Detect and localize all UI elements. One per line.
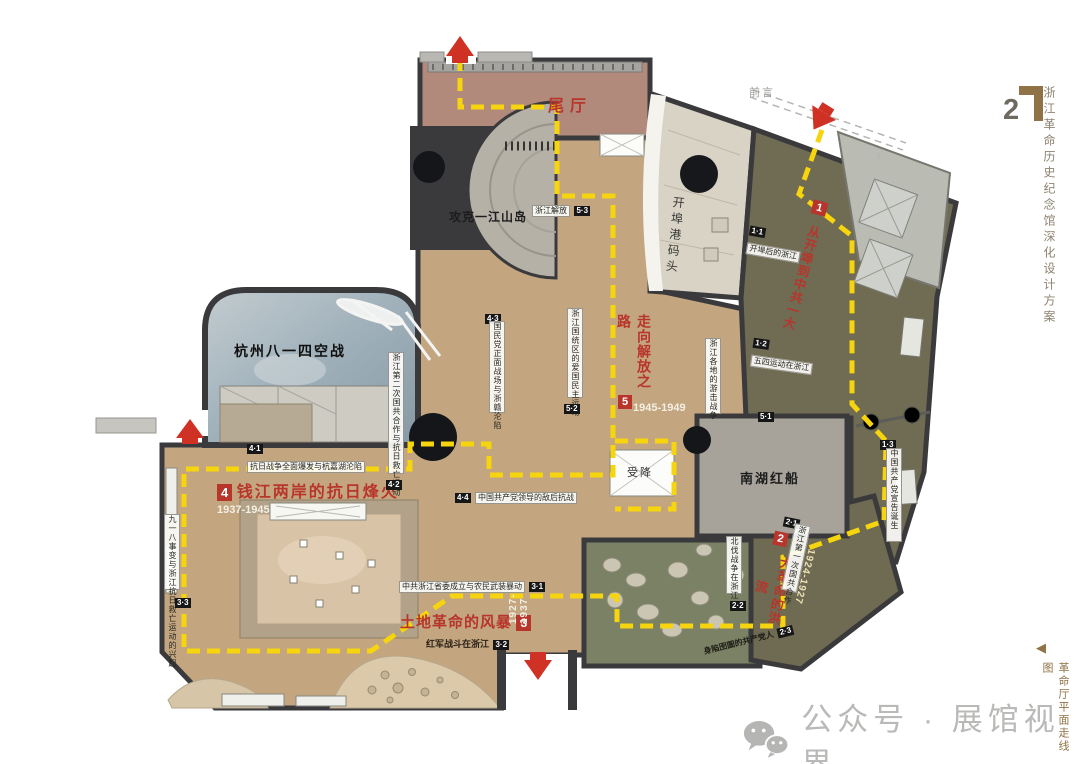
sub-4-1-code: 4·1: [247, 444, 263, 454]
watermark: 公众号 · 展馆视界: [742, 694, 1080, 764]
floor-plan-page: 尾厅 前言 攻克一江山岛 浙江解放 5·3 开埠港码头 1 从开埠到中共一大 1…: [0, 0, 1080, 764]
sub-3-1-label: 中共浙江省委成立与农民武装暴动: [399, 581, 525, 593]
sub-5-3: 浙江解放 5·3: [532, 200, 590, 218]
pillar: [680, 155, 718, 193]
sub-4-2-label: 浙江第二次国共合作与抗日救亡运动: [388, 352, 404, 474]
sub-5-3-code: 5·3: [574, 206, 590, 216]
end-hall-label: 尾厅: [548, 92, 592, 116]
section4-title: 钱江两岸的抗日烽火: [237, 484, 399, 501]
sub-4-1: 4·1 抗日战争全面爆发与杭嘉湖沦陷: [247, 438, 365, 474]
section3-years: 1927-1937: [508, 570, 530, 624]
sub-4-4: 4·4 中国共产党领导的敌后抗战: [455, 487, 577, 505]
sub-2-3-code: 2·3: [777, 625, 795, 638]
sub-2-2-code: 2·2: [730, 601, 746, 611]
logo-bracket-icon: [1019, 86, 1043, 121]
section2-number: 2: [772, 531, 789, 548]
sub-1-1-code: 1·1: [749, 225, 766, 238]
sub-1-3-label: 中国共产党宣告诞生: [886, 448, 902, 542]
section5-title: 走向解放之路: [614, 314, 654, 398]
watermark-text: 公众号 · 展馆视界: [801, 694, 1080, 764]
project-title: 浙江革命历史纪念馆深化设计方案: [1041, 86, 1058, 646]
section4-number: 4: [217, 484, 232, 501]
section5-years: 1945-1949: [633, 402, 686, 414]
sub-4-4-code: 4·4: [455, 493, 471, 503]
sub-5-2: 5·2: [564, 398, 580, 416]
section5-number: 5: [618, 395, 632, 409]
sub-5-2-label: 浙江国统区的爱国民主运动: [567, 308, 583, 398]
floor-plan-drawing: [0, 0, 1080, 764]
sub-4-3-label: 国民党正面战场与浙赣沦陷: [489, 321, 505, 413]
section4-years: 1937-1945: [217, 504, 399, 516]
sub-4-1-label: 抗日战争全面爆发与杭嘉湖沦陷: [247, 461, 365, 473]
section3-title: 土地革命的风暴: [400, 614, 512, 631]
relief-exhibit: [240, 500, 418, 638]
wechat-icon: [742, 718, 791, 760]
page-number: 2: [1003, 94, 1019, 127]
yijiangshan-label: 攻克一江山岛: [449, 208, 527, 225]
air-battle-label: 杭州八一四空战: [234, 341, 346, 361]
sub-1-2-code: 1·2: [753, 338, 770, 350]
sub-3-3-code: 3·3: [175, 598, 191, 608]
triangle-marker-icon: ◀: [1036, 640, 1046, 656]
pillar: [683, 426, 711, 454]
sub-3-2-code: 3·2: [493, 640, 509, 650]
section1-number: 1: [811, 200, 828, 217]
sub-2-2-label: 北伐战争在浙江: [726, 536, 742, 594]
sub-4-4-label: 中国共产党领导的敌后抗战: [475, 492, 577, 504]
sub-4-2: 4·2: [386, 474, 402, 492]
sub-2-2: 2·2: [730, 595, 746, 613]
section4-title-block: 4 钱江两岸的抗日烽火 1937-1945: [217, 478, 399, 516]
sub-4-2-code: 4·2: [386, 480, 402, 490]
preface-label: 前言: [749, 84, 775, 100]
sub-3-3: 3·3: [175, 592, 191, 610]
sub-5-1-code: 5·1: [758, 412, 774, 422]
crossed-display: [600, 134, 644, 156]
sub-5-1: 5·1: [758, 406, 774, 424]
sub-3-1-code: 3·1: [529, 582, 545, 592]
sub-5-1-label: 浙江各地的游击战争: [705, 338, 721, 414]
sub-3-2: 红军战斗在浙江 3·2: [426, 634, 509, 652]
sub-5-3-label: 浙江解放: [532, 205, 570, 217]
surrender-label: 受降: [627, 464, 653, 480]
sub-5-2-code: 5·2: [564, 404, 580, 414]
sub-3-3-label: 九一八事变与浙江抗日救亡运动的兴起: [164, 514, 180, 590]
sub-3-2-label: 红军战斗在浙江: [426, 639, 489, 649]
red-boat-label: 南湖红船: [740, 468, 800, 487]
section5-number-wrap: 5: [618, 392, 632, 410]
pillar: [409, 413, 457, 461]
